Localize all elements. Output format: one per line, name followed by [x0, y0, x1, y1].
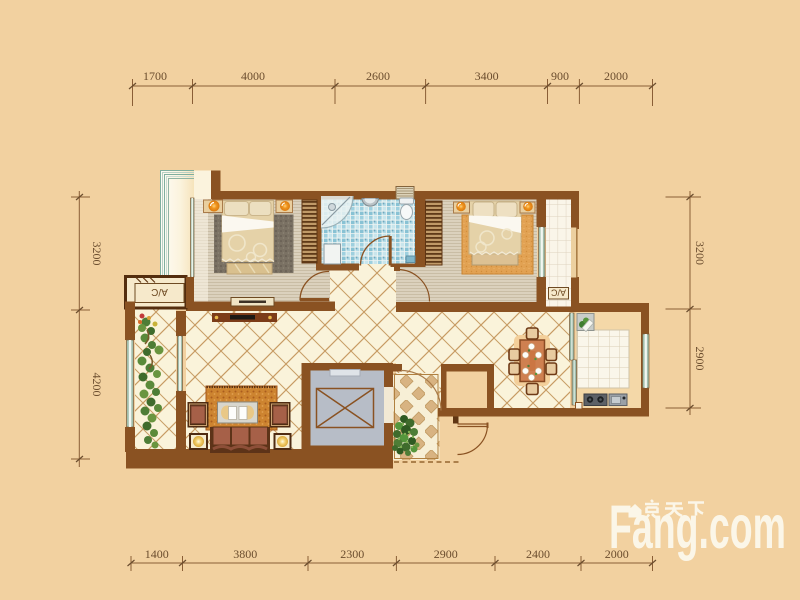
svg-text:3800: 3800 [233, 547, 257, 561]
svg-text:A/C: A/C [151, 286, 168, 297]
svg-text:2600: 2600 [366, 69, 390, 83]
svg-text:900: 900 [551, 69, 569, 83]
svg-text:2900: 2900 [434, 547, 458, 561]
svg-text:2900: 2900 [693, 347, 707, 371]
svg-text:1700: 1700 [143, 69, 167, 83]
svg-text:1400: 1400 [145, 547, 169, 561]
svg-text:2300: 2300 [340, 547, 364, 561]
svg-text:2000: 2000 [604, 69, 628, 83]
svg-text:4200: 4200 [90, 373, 104, 397]
svg-text:A/C: A/C [551, 288, 567, 298]
svg-text:2400: 2400 [526, 547, 550, 561]
svg-text:Fang.com: Fang.com [609, 493, 786, 561]
svg-text:3400: 3400 [475, 69, 499, 83]
svg-text:3200: 3200 [693, 241, 707, 265]
svg-text:3200: 3200 [90, 242, 104, 266]
svg-text:4000: 4000 [241, 69, 265, 83]
